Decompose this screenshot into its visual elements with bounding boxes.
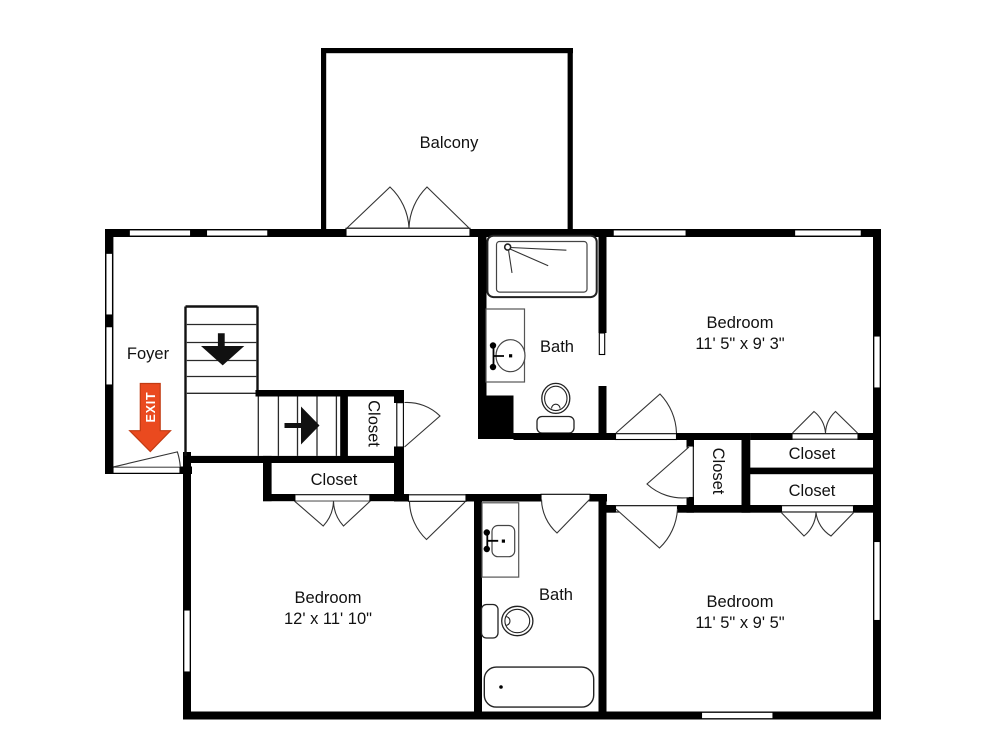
svg-text:Balcony: Balcony	[420, 134, 479, 152]
svg-text:Bedroom: Bedroom	[707, 314, 774, 332]
svg-text:Foyer: Foyer	[127, 345, 170, 363]
svg-text:Bath: Bath	[539, 586, 573, 604]
svg-text:Closet: Closet	[789, 482, 836, 500]
svg-text:Closet: Closet	[709, 448, 727, 495]
svg-text:EXIT: EXIT	[144, 392, 158, 423]
svg-text:11' 5" x 9' 5": 11' 5" x 9' 5"	[695, 614, 784, 632]
svg-text:Bedroom: Bedroom	[295, 589, 362, 607]
svg-text:12' x 11' 10": 12' x 11' 10"	[284, 610, 372, 628]
svg-text:Closet: Closet	[311, 471, 358, 489]
svg-text:11' 5" x 9' 3": 11' 5" x 9' 3"	[695, 335, 784, 353]
svg-text:Bath: Bath	[540, 338, 574, 356]
svg-text:Closet: Closet	[789, 445, 836, 463]
svg-text:Bedroom: Bedroom	[707, 593, 774, 611]
svg-text:Closet: Closet	[365, 400, 383, 447]
